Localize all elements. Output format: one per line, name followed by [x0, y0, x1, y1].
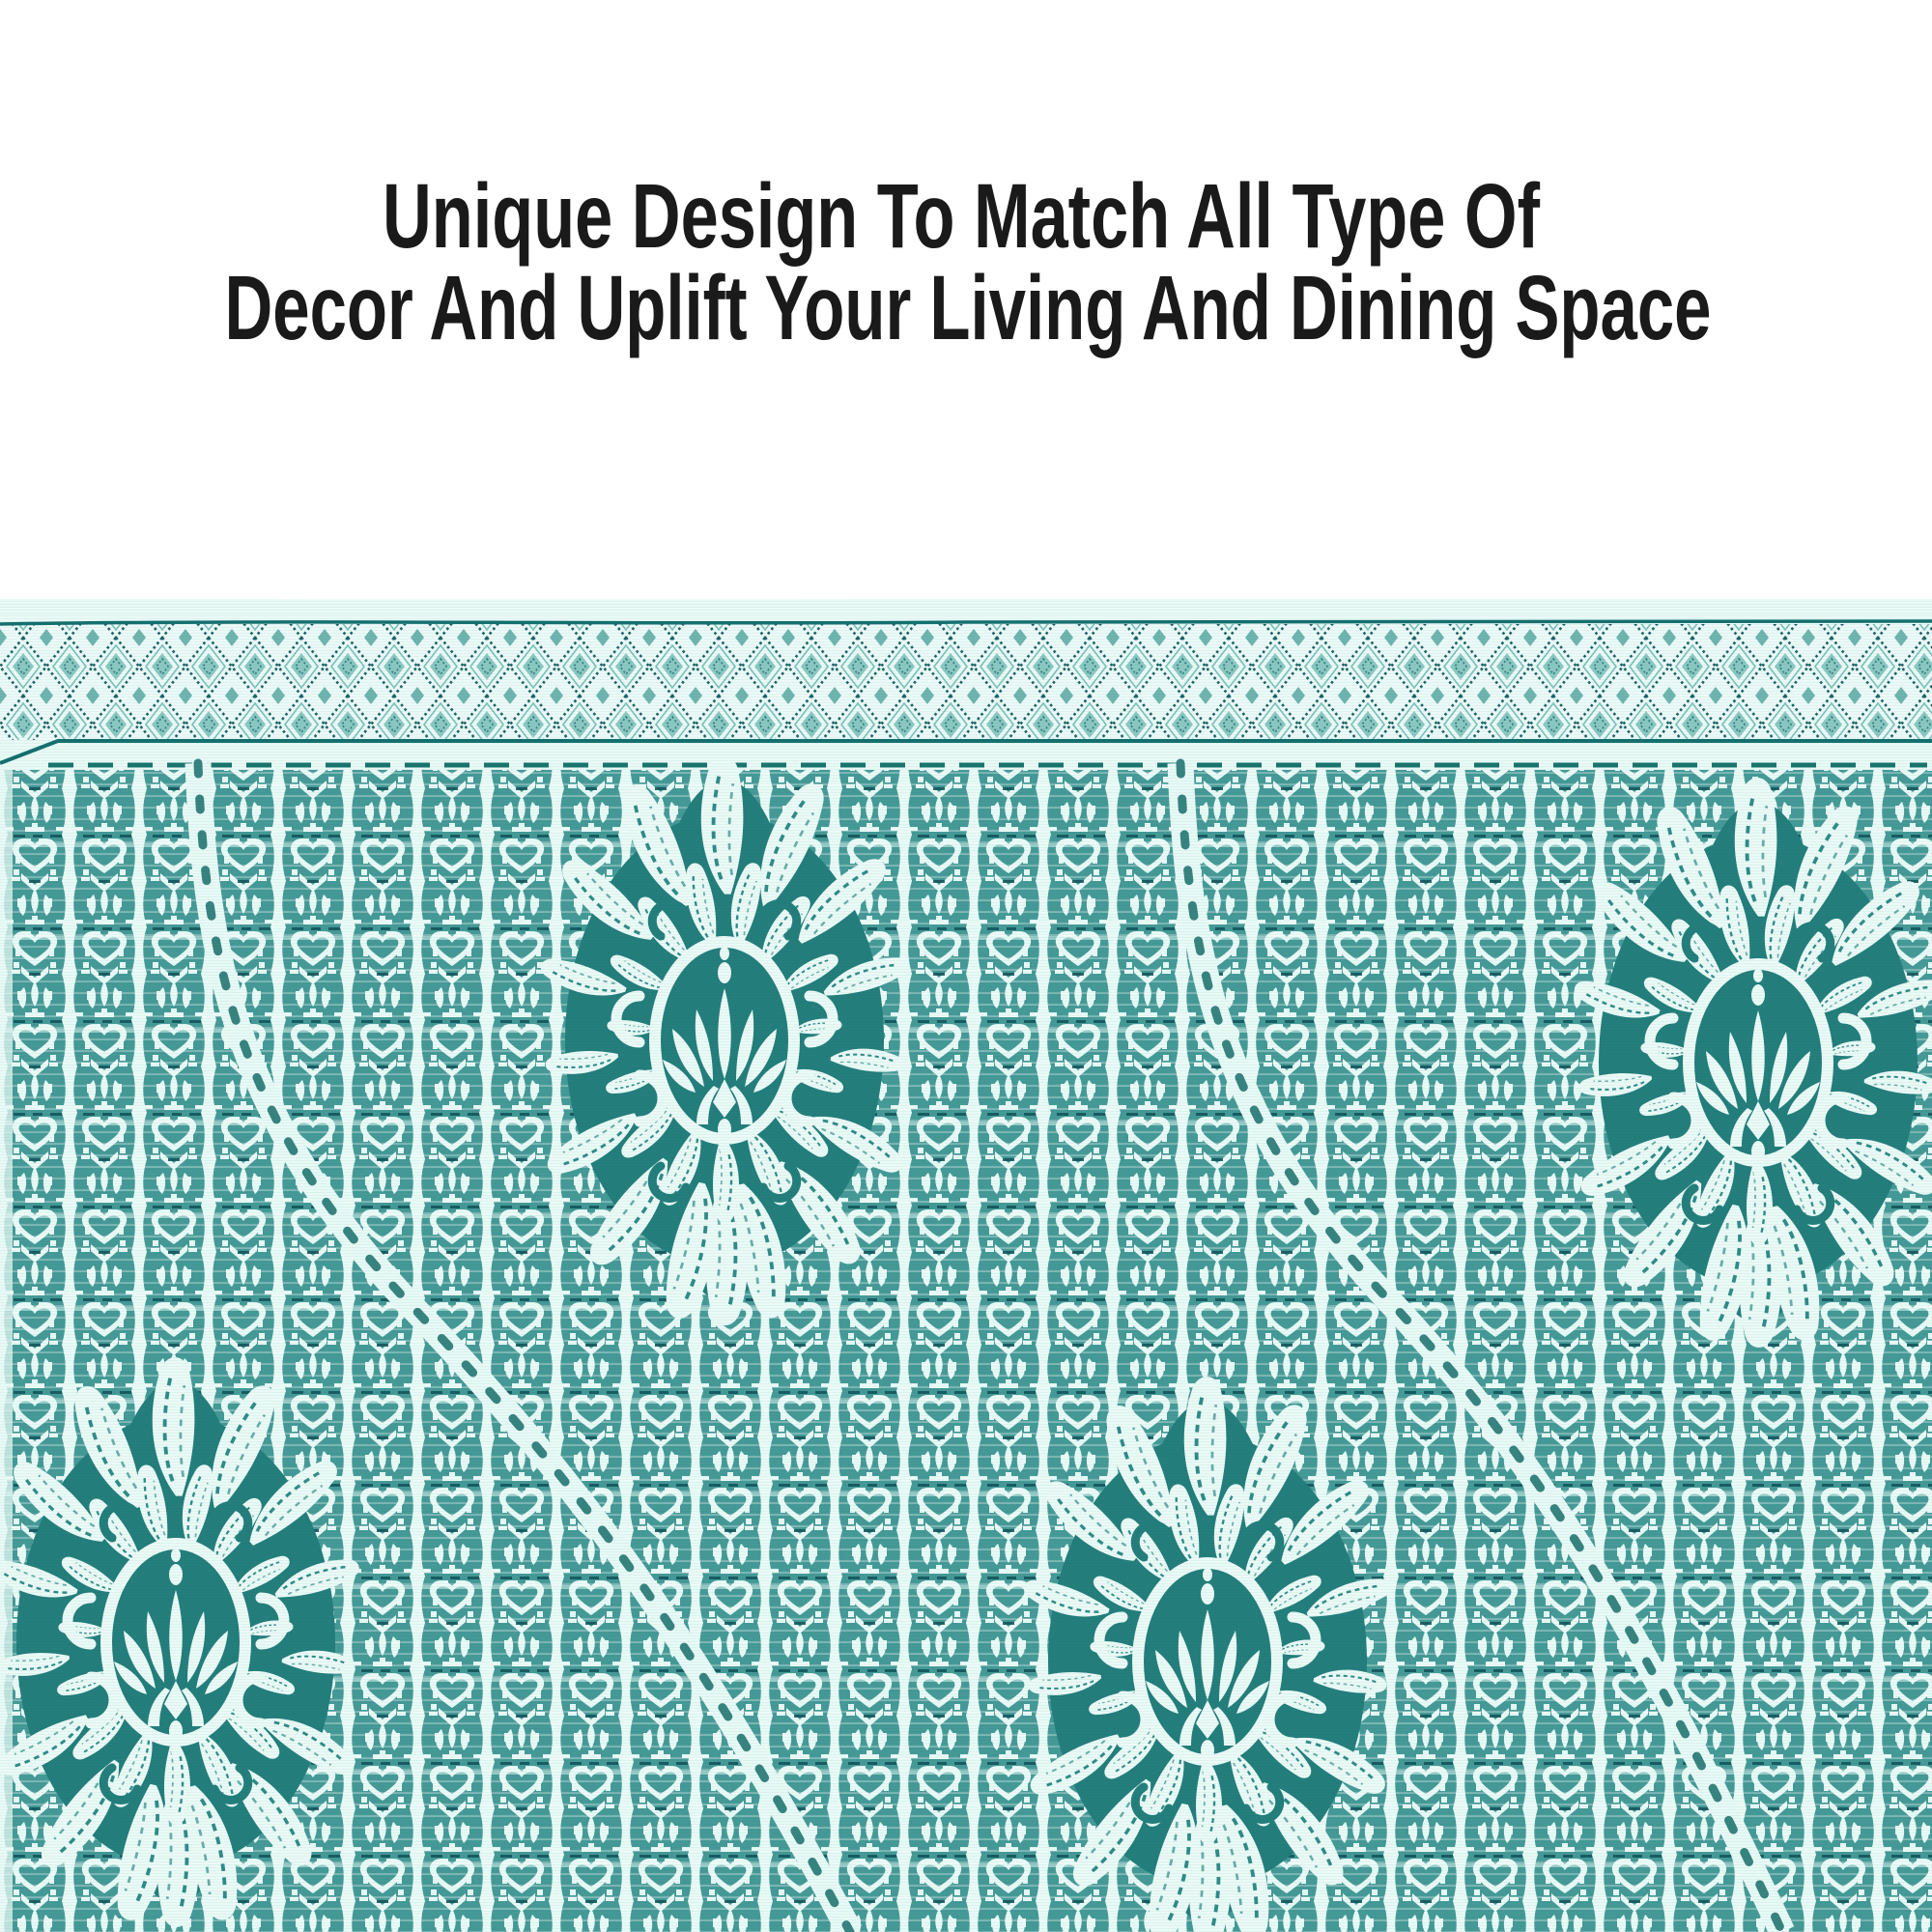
svg-text:Decor And Uplift Your Living A: Decor And Uplift Your Living And Dining … [225, 257, 1712, 359]
svg-text:Unique Design To Match All Typ: Unique Design To Match All Type Of [383, 165, 1540, 268]
